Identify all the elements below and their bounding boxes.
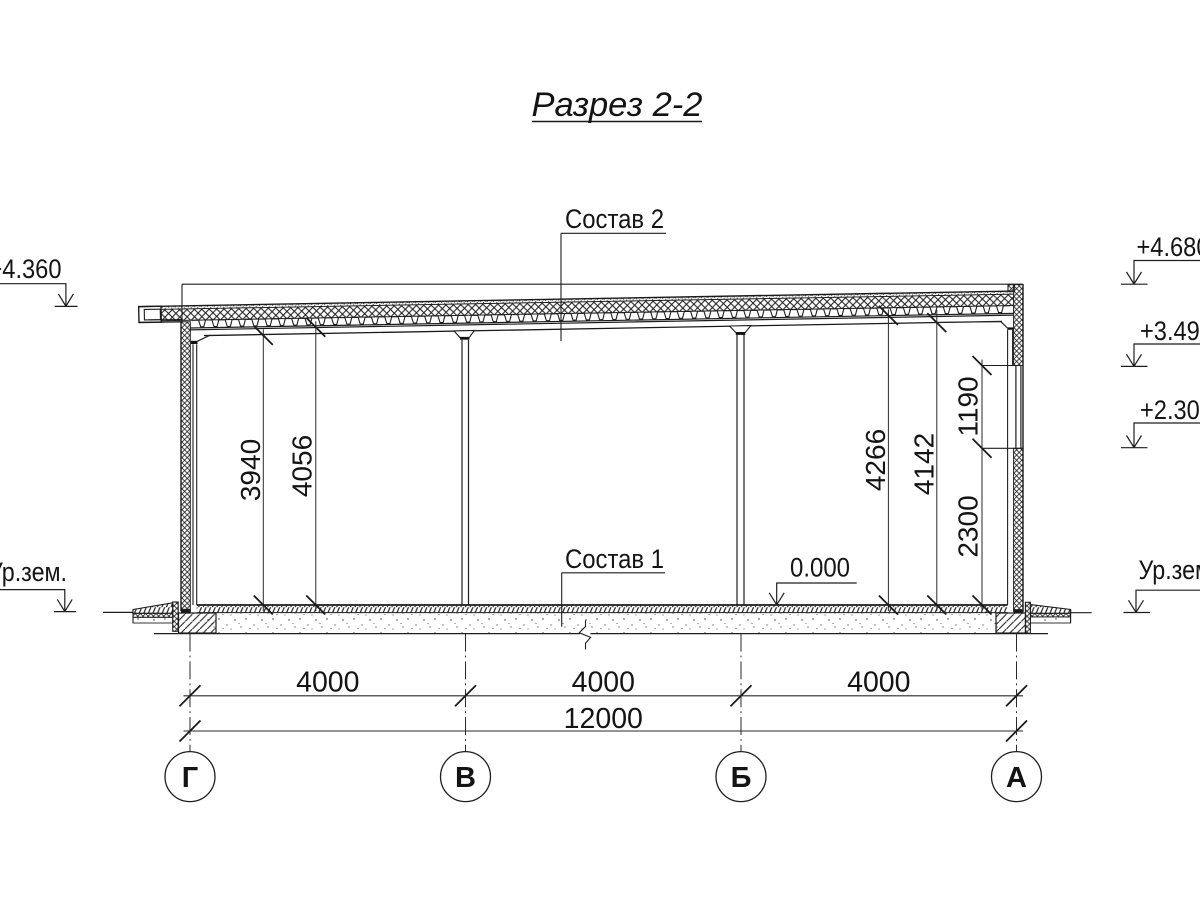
svg-text:4142: 4142 [909,433,940,495]
svg-text:Состав 1: Состав 1 [565,544,664,574]
svg-text:0.000: 0.000 [790,553,850,583]
svg-text:4000: 4000 [847,667,910,699]
svg-text:Ур.зем.: Ур.зем. [1139,555,1200,585]
svg-text:12000: 12000 [564,703,643,735]
svg-text:+4.680: +4.680 [1137,232,1200,262]
svg-text:4266: 4266 [860,429,891,491]
svg-text:+2.300: +2.300 [1140,395,1200,425]
svg-text:Б: Б [731,762,752,794]
svg-text:4000: 4000 [296,667,359,699]
svg-text:Состав 2: Состав 2 [565,204,664,234]
svg-text:3940: 3940 [235,439,266,501]
svg-text:4056: 4056 [287,435,318,497]
svg-text:1190: 1190 [953,376,984,436]
svg-text:4000: 4000 [572,667,635,699]
svg-text:2300: 2300 [953,495,984,557]
svg-text:А: А [1006,762,1027,794]
svg-text:Ур.зем.: Ур.зем. [0,557,67,587]
svg-text:Г: Г [182,762,198,794]
svg-text:+4.360: +4.360 [0,254,62,284]
svg-text:В: В [455,762,476,794]
svg-text:+3.490: +3.490 [1140,316,1200,346]
svg-text:Разрез 2-2: Разрез 2-2 [532,86,703,124]
